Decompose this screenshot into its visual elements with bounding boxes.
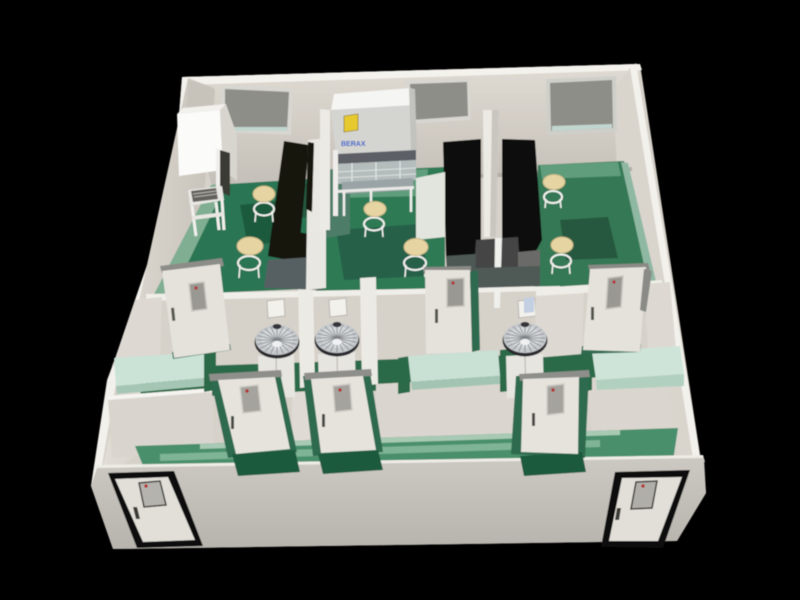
svg-text:BERAX: BERAX (341, 141, 366, 148)
